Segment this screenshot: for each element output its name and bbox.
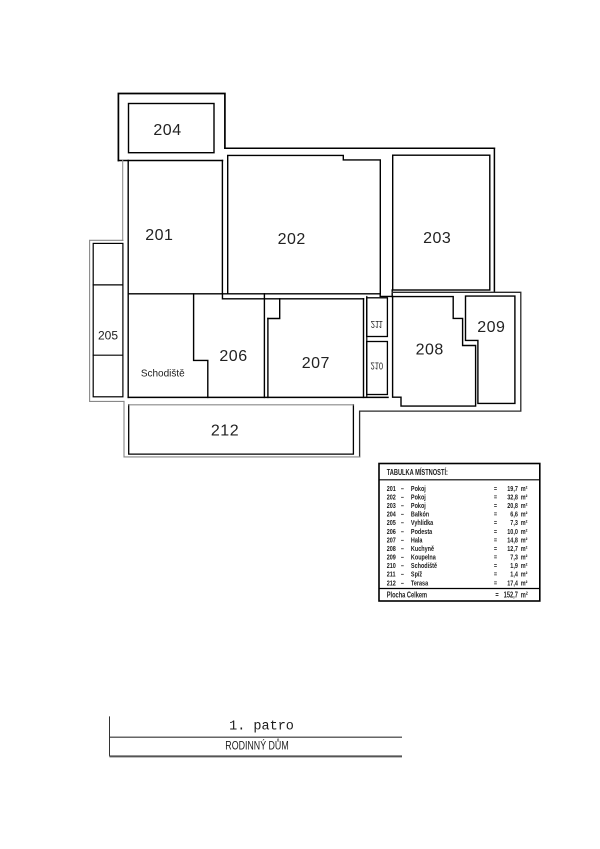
- svg-text:205: 205: [98, 328, 118, 342]
- svg-text:7,3: 7,3: [510, 554, 518, 562]
- svg-text:m²: m²: [521, 571, 528, 579]
- svg-text:202–Pokoj: 202–Pokoj: [387, 494, 426, 502]
- svg-text:12,7: 12,7: [507, 545, 518, 553]
- svg-text:=: =: [494, 562, 497, 570]
- svg-text:201–Pokoj: 201–Pokoj: [387, 485, 426, 493]
- svg-text:=: =: [494, 511, 497, 519]
- svg-text:m²: m²: [521, 511, 528, 519]
- svg-text:RODINNÝ DŮM: RODINNÝ DŮM: [225, 738, 288, 753]
- svg-text:7,3: 7,3: [510, 519, 518, 527]
- svg-text:210–Schodiště: 210–Schodiště: [387, 562, 438, 570]
- svg-text:m²: m²: [521, 537, 528, 545]
- svg-text:17,4: 17,4: [507, 580, 518, 588]
- svg-text:=: =: [494, 485, 497, 493]
- svg-text:=: =: [494, 537, 497, 545]
- svg-text:1. patro: 1. patro: [229, 719, 294, 734]
- svg-text:1,9: 1,9: [510, 562, 518, 570]
- svg-text:10,0: 10,0: [507, 528, 518, 536]
- svg-text:202: 202: [278, 231, 306, 248]
- svg-text:=: =: [494, 519, 497, 527]
- svg-text:204–Balkón: 204–Balkón: [387, 511, 429, 519]
- svg-text:20,8: 20,8: [507, 502, 518, 510]
- svg-text:32,8: 32,8: [507, 494, 518, 502]
- svg-text:=: =: [495, 592, 498, 600]
- svg-text:m²: m²: [521, 562, 528, 570]
- svg-text:=: =: [494, 554, 497, 562]
- svg-text:211: 211: [371, 319, 383, 330]
- svg-text:19,7: 19,7: [507, 485, 518, 493]
- svg-text:6,6: 6,6: [510, 511, 518, 519]
- svg-text:212: 212: [211, 423, 239, 440]
- svg-text:m²: m²: [521, 485, 528, 493]
- svg-text:206–Podesta: 206–Podesta: [387, 528, 433, 536]
- svg-text:m²: m²: [521, 554, 528, 562]
- svg-text:152,7: 152,7: [504, 592, 518, 600]
- svg-text:Plocha Celkem: Plocha Celkem: [387, 592, 427, 600]
- svg-text:208–Kuchyně: 208–Kuchyně: [387, 545, 435, 553]
- svg-text:204: 204: [153, 122, 181, 139]
- svg-text:211–Spíž: 211–Spíž: [387, 571, 423, 579]
- svg-text:m²: m²: [521, 494, 528, 502]
- svg-text:1,4: 1,4: [510, 571, 518, 579]
- svg-text:209–Koupelna: 209–Koupelna: [387, 554, 436, 562]
- svg-text:206: 206: [219, 348, 247, 365]
- svg-text:201: 201: [145, 227, 173, 244]
- svg-text:207: 207: [302, 355, 330, 372]
- svg-text:=: =: [494, 528, 497, 536]
- svg-text:Schodiště: Schodiště: [141, 369, 185, 380]
- svg-text:=: =: [494, 571, 497, 579]
- svg-text:=: =: [494, 545, 497, 553]
- svg-text:205–Vyhlídka: 205–Vyhlídka: [387, 519, 434, 527]
- svg-text:203: 203: [423, 230, 451, 247]
- svg-text:210: 210: [371, 360, 384, 371]
- svg-text:=: =: [494, 494, 497, 502]
- svg-text:m²: m²: [521, 580, 528, 588]
- svg-text:209: 209: [477, 319, 505, 336]
- svg-text:m²: m²: [521, 502, 528, 510]
- svg-text:14,8: 14,8: [507, 537, 518, 545]
- svg-text:TABULKA MÍSTNOSTÍ:: TABULKA MÍSTNOSTÍ:: [387, 467, 448, 477]
- svg-text:m²: m²: [521, 519, 528, 527]
- svg-text:203–Pokoj: 203–Pokoj: [387, 502, 426, 510]
- svg-text:207–Hala: 207–Hala: [387, 537, 423, 545]
- svg-text:208: 208: [416, 342, 444, 359]
- svg-text:212–Terasa: 212–Terasa: [387, 580, 429, 588]
- svg-text:m²: m²: [521, 592, 529, 600]
- svg-text:m²: m²: [521, 545, 528, 553]
- svg-text:m²: m²: [521, 528, 528, 536]
- svg-text:=: =: [494, 580, 497, 588]
- svg-text:=: =: [494, 502, 497, 510]
